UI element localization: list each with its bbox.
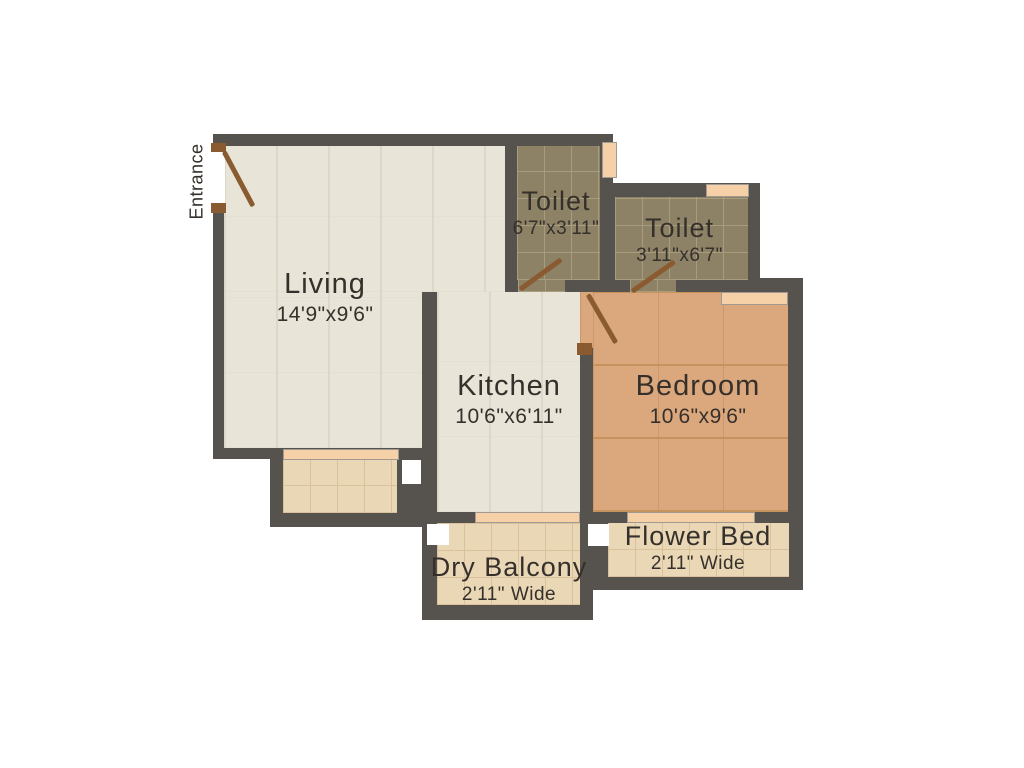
- living-balcony-floor: [283, 459, 397, 513]
- living-dims: 14'9"x9'6": [225, 303, 425, 327]
- toilet2-dims: 3'11"x6'7": [607, 245, 752, 267]
- duct-opening-living-balcony: [402, 460, 421, 484]
- flower-bed-label: Flower Bed 2'11" Wide: [608, 521, 788, 575]
- entrance-opening: [211, 148, 225, 208]
- toilet1-name: Toilet: [500, 186, 612, 217]
- toilet1-dims: 6'7"x3'11": [500, 218, 612, 240]
- flower-bed-name: Flower Bed: [608, 521, 788, 552]
- toilet2-name: Toilet: [607, 213, 752, 244]
- duct-opening-flower-bed: [588, 524, 609, 546]
- kitchen-label: Kitchen 10'6"x6'11": [423, 370, 595, 429]
- toilet2-label: Toilet 3'11"x6'7": [607, 213, 752, 267]
- kitchen-window: [475, 512, 580, 523]
- kitchen-name: Kitchen: [423, 370, 595, 403]
- kitchen-dims: 10'6"x6'11": [423, 405, 595, 429]
- duct-opening-dry-balcony: [427, 524, 449, 545]
- flower-bed-dims: 2'11" Wide: [608, 553, 788, 575]
- toilet1-window: [602, 142, 617, 178]
- bedroom-dims: 10'6"x9'6": [603, 405, 793, 429]
- entrance-door-hinge-bottom-icon: [211, 203, 226, 213]
- dry-balcony-dims: 2'11" Wide: [420, 584, 598, 606]
- toilet2-window: [706, 184, 749, 197]
- bedroom-name: Bedroom: [603, 370, 793, 403]
- bedroom-label: Bedroom 10'6"x9'6": [603, 370, 793, 429]
- bedroom-window: [721, 292, 788, 305]
- entrance-label: Entrance: [187, 132, 208, 232]
- dry-balcony-name: Dry Balcony: [420, 552, 598, 583]
- living-name: Living: [225, 268, 425, 301]
- living-label: Living 14'9"x9'6": [225, 268, 425, 327]
- floor-plan-canvas: Entrance Living 14'9"x9'6" Toilet 6'7"x3…: [0, 0, 1024, 768]
- toilet1-label: Toilet 6'7"x3'11": [500, 186, 612, 240]
- bedroom-door-hinge-icon: [577, 343, 592, 355]
- living-balcony-window: [283, 449, 399, 460]
- dry-balcony-label: Dry Balcony 2'11" Wide: [420, 552, 598, 606]
